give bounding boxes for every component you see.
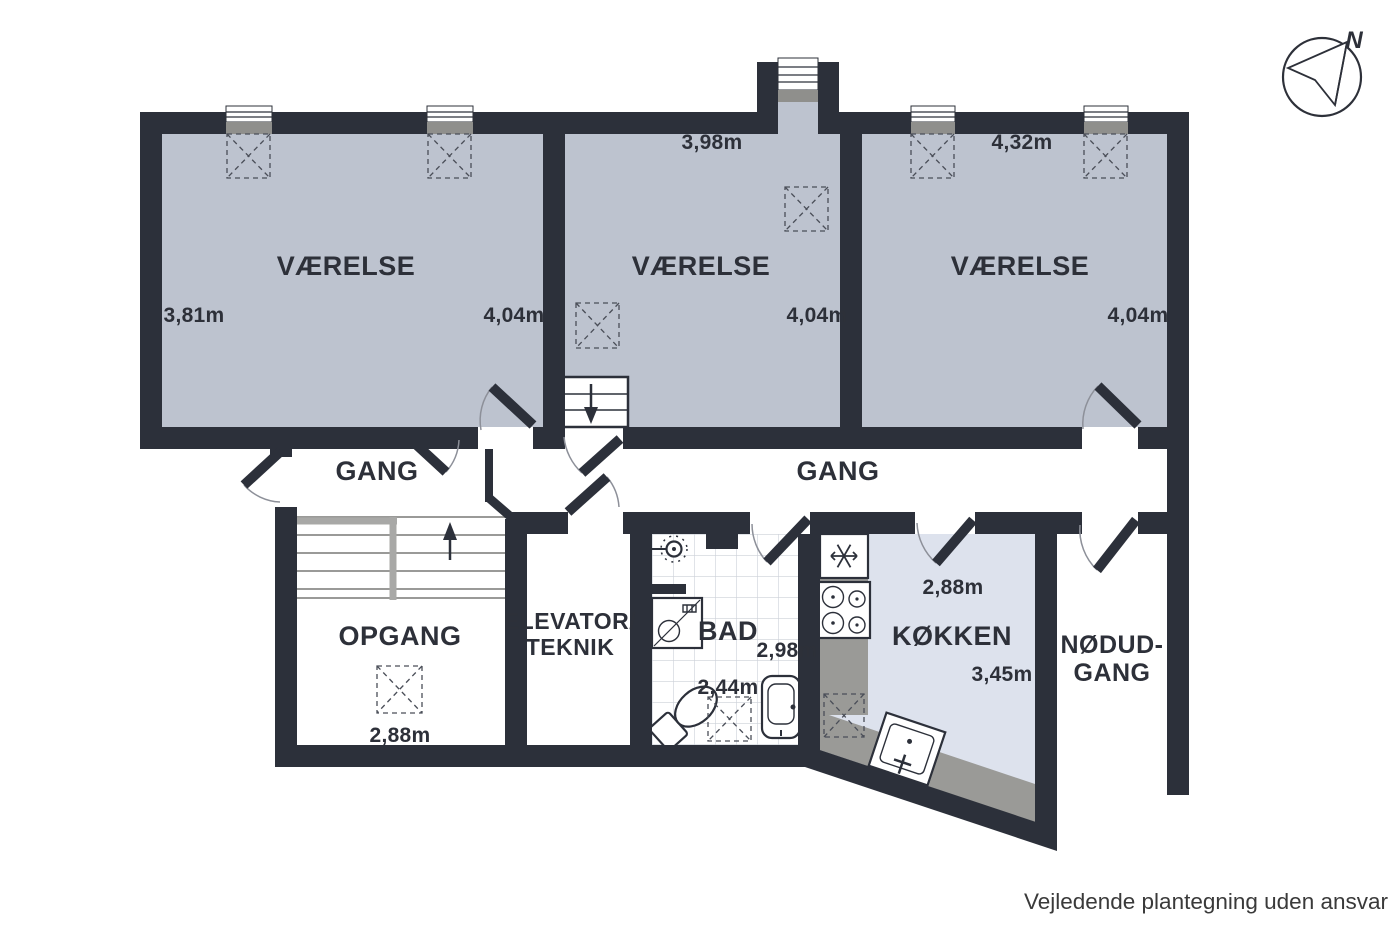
washing-machine-icon xyxy=(652,598,702,648)
dim-vaerelse-left-width: 3,81m xyxy=(163,304,224,327)
floor-fills xyxy=(162,88,1167,822)
dim-vaerelse-middle-depth: 4,04m xyxy=(786,304,847,327)
floor-plan-drawing: VÆRELSE 3,81m 4,04m VÆRELSE 3,98m 4,04m … xyxy=(0,0,1400,933)
bathroom-sink-icon xyxy=(762,676,800,738)
disclaimer-text: Vejledende plantegning uden ansvar xyxy=(1024,889,1389,914)
window xyxy=(226,106,272,134)
shower-partition xyxy=(652,584,686,594)
bay-window xyxy=(778,58,818,102)
window xyxy=(427,106,473,134)
dim-koekken-depth: 3,45m xyxy=(971,663,1032,686)
window xyxy=(1084,106,1128,134)
label-opgang: OPGANG xyxy=(338,621,461,651)
door-elevator xyxy=(568,477,619,512)
dim-vaerelse-right-width: 4,32m xyxy=(991,131,1052,154)
stove-icon xyxy=(818,582,870,638)
label-noedudgang-line2: GANG xyxy=(1074,659,1151,687)
fridge-icon xyxy=(820,534,868,578)
label-gang-left: GANG xyxy=(336,456,419,486)
door-noedudgang xyxy=(1080,520,1136,570)
dim-bad-height: 2,98m xyxy=(756,639,817,662)
compass-north-label: N xyxy=(1345,27,1363,54)
window xyxy=(911,106,955,134)
dim-vaerelse-middle-width: 3,98m xyxy=(681,131,742,154)
label-elevator-line1: ELEVATOR/ xyxy=(504,608,636,634)
dim-koekken-width: 2,88m xyxy=(922,576,983,599)
dim-opgang: 2,88m xyxy=(369,724,430,747)
opgang-stairs xyxy=(297,517,505,600)
dim-bad-width: 2,44m xyxy=(697,676,758,699)
door-steps-vestibule xyxy=(564,437,620,473)
floor-plan-page: VÆRELSE 3,81m 4,04m VÆRELSE 3,98m 4,04m … xyxy=(0,0,1400,933)
entrance-door xyxy=(244,451,281,502)
dim-vaerelse-left-depth: 4,04m xyxy=(483,304,544,327)
label-gang-right: GANG xyxy=(797,456,880,486)
label-noedudgang-line1: NØDUD- xyxy=(1061,631,1164,659)
compass-icon: N xyxy=(1283,27,1363,116)
dim-vaerelse-right-depth: 4,04m xyxy=(1107,304,1168,327)
label-vaerelse-right: VÆRELSE xyxy=(951,251,1090,281)
label-vaerelse-left: VÆRELSE xyxy=(277,251,416,281)
label-koekken: KØKKEN xyxy=(892,621,1012,651)
label-elevator-line2: TEKNIK xyxy=(526,634,615,660)
label-bad: BAD xyxy=(698,616,758,646)
stairs-up-arrow-icon xyxy=(443,522,457,560)
label-vaerelse-middle: VÆRELSE xyxy=(632,251,771,281)
